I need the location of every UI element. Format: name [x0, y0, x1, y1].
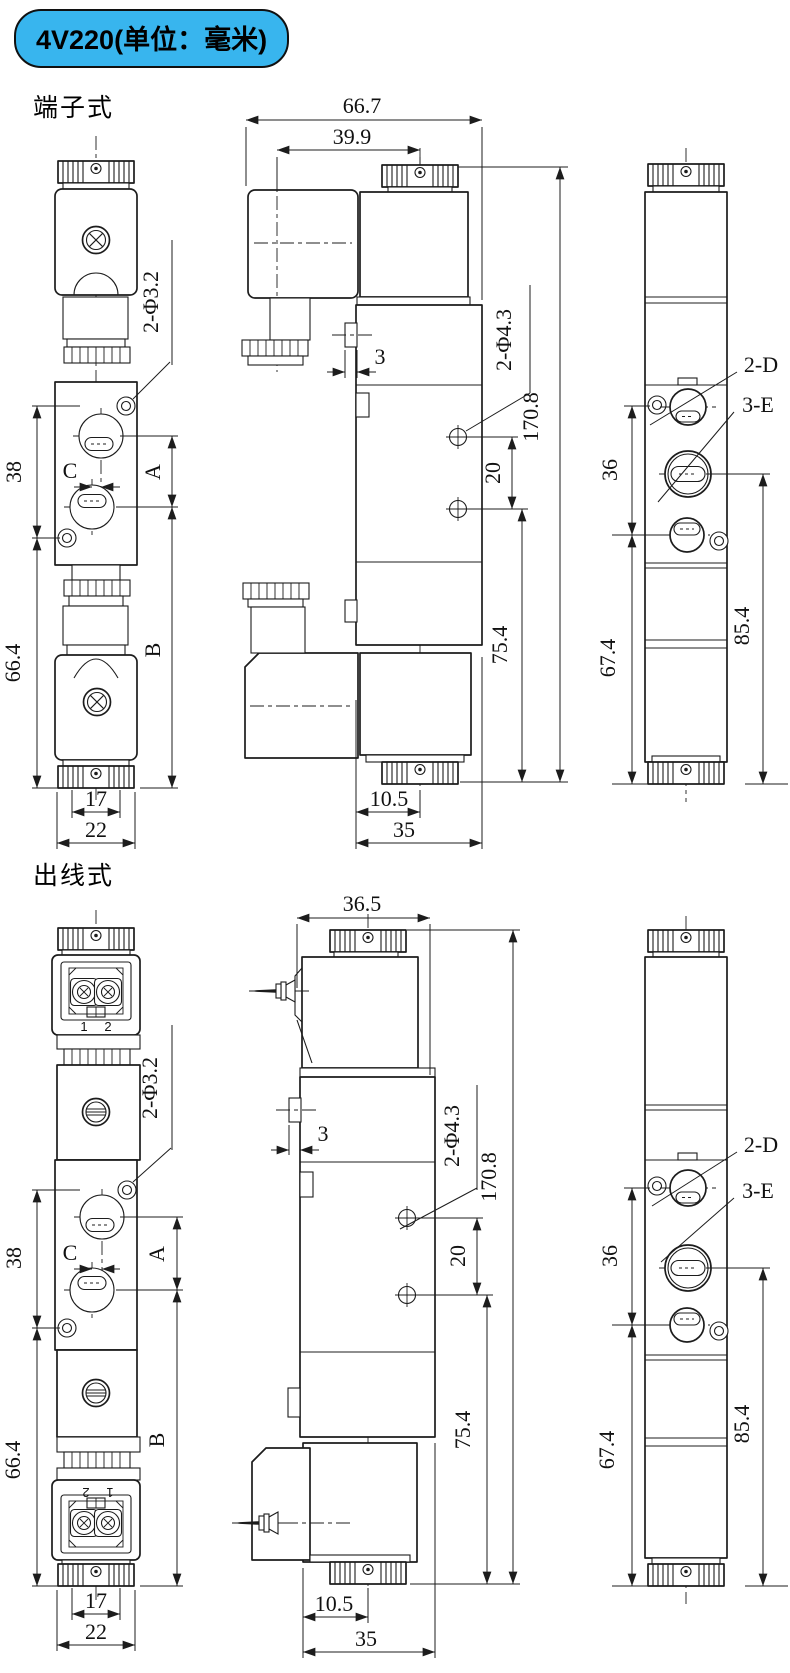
dim-text: 66.4	[0, 644, 25, 683]
hole-callout: 2-Φ4.3	[439, 1105, 464, 1167]
leadwire-type-side-view: 1 2 2 1	[0, 910, 183, 1651]
dim-text: A	[140, 464, 165, 480]
dim-text: 38	[1, 1247, 26, 1269]
hole-callout: 2-Φ4.3	[491, 309, 516, 371]
dim-text: 67.4	[594, 1431, 619, 1470]
dim-text: 85.4	[729, 1405, 754, 1444]
knurled-cap	[330, 1562, 406, 1584]
dim-text: 170.8	[518, 392, 543, 442]
pilot-hole	[710, 532, 728, 550]
knurled-cap	[648, 1564, 724, 1586]
dim-text: 22	[85, 1619, 107, 1644]
dim-text: 36	[597, 459, 622, 481]
dim-text: 10.5	[315, 1591, 354, 1616]
dim-text: B	[144, 1433, 169, 1448]
pilot-hole	[710, 1322, 728, 1340]
technical-drawing: 2-Φ3.2 38 66.4 C A	[0, 0, 790, 1673]
terminal-type-side-view: 2-Φ3.2 38 66.4 C A	[0, 136, 178, 849]
dim-text: 170.8	[476, 1152, 501, 1202]
port-a	[79, 414, 123, 458]
slotted-screw-icon	[83, 1099, 110, 1126]
dim-text: 75.4	[487, 626, 512, 665]
hole-callout: 2-Φ3.2	[138, 271, 163, 333]
port-label: 3-E	[742, 392, 774, 417]
dim-text: 67.4	[595, 639, 620, 678]
dim-text: A	[144, 1246, 169, 1262]
leadwire-type-end-view: 2-D 3-E 36 67.4 85.4	[594, 916, 788, 1604]
knurled-cap	[648, 930, 724, 952]
mounting-hole	[118, 1181, 136, 1199]
terminal-label: 1	[80, 1019, 87, 1034]
knurled-cap	[382, 165, 458, 187]
dim-17: 17	[72, 786, 120, 818]
dim-66-4: 66.4	[0, 538, 60, 788]
knurled-cap	[648, 762, 724, 784]
pilot-hole	[648, 396, 666, 414]
dim-text: 35	[393, 817, 415, 842]
leadwire-type-front-view: 36.5 3 2-Φ4.3 20 75.4	[232, 891, 520, 1658]
dim-text: 85.4	[729, 607, 754, 646]
port-label: 2-D	[744, 1132, 778, 1157]
mounting-hole	[58, 529, 76, 547]
terminal-type-end-view: 2-D 3-E 36 67.4 85.4	[595, 148, 788, 802]
din-connector	[52, 1480, 140, 1560]
terminal-label: 2	[82, 1485, 89, 1500]
port-label: 2-D	[744, 352, 778, 377]
dim-text: 66.4	[0, 1441, 25, 1480]
knurled-cap	[648, 164, 724, 186]
knurled-cap	[58, 766, 134, 788]
dim-text: 38	[1, 461, 26, 483]
dim-text: 66.7	[343, 93, 382, 118]
terminal-label: 1	[106, 1485, 113, 1500]
mounting-hole	[58, 1319, 76, 1337]
wire-lead	[249, 980, 309, 1002]
dim-text: 10.5	[370, 786, 409, 811]
dim-text: B	[140, 643, 165, 658]
knurled-cap	[330, 930, 406, 952]
dim-text: 20	[445, 1245, 470, 1267]
dim-text: 36.5	[343, 891, 382, 916]
dim-text: 3	[318, 1121, 329, 1146]
slotted-screw-icon	[83, 1380, 110, 1407]
dim-text: 17	[85, 786, 107, 811]
dim-75-4: 75.4	[487, 509, 522, 782]
drawing-canvas: 4V220(单位：毫米) 端子式 出线式	[0, 0, 790, 1673]
dim-text: 35	[355, 1626, 377, 1651]
mounting-hole	[117, 397, 135, 415]
dim-text: 20	[480, 462, 505, 484]
terminal-type-front-view: 66.7 39.9 3 2-Φ4.3 20	[242, 93, 568, 849]
dim-text: C	[63, 1240, 78, 1265]
dim-b: B	[140, 1290, 183, 1586]
dim-text: 3	[375, 344, 386, 369]
dim-text: 39.9	[333, 124, 372, 149]
hole-callout: 2-Φ3.2	[137, 1057, 162, 1119]
knurled-cap	[382, 762, 458, 784]
knurled-cap	[58, 1564, 134, 1586]
phillips-screw-icon	[84, 689, 111, 716]
knurled-cap	[58, 928, 134, 950]
dim-text: 36	[597, 1245, 622, 1267]
dim-17: 17	[72, 1588, 120, 1620]
port-label: 3-E	[742, 1178, 774, 1203]
terminal-label: 2	[104, 1019, 111, 1034]
knurled-cap	[58, 161, 134, 183]
pilot-hole	[648, 1177, 666, 1195]
dim-text: 22	[85, 817, 107, 842]
dim-66-4: 66.4	[0, 1328, 60, 1586]
dim-b: B	[140, 507, 178, 788]
dim-text: 75.4	[450, 1411, 475, 1450]
din-connector	[52, 955, 140, 1035]
dim-text: 17	[85, 1588, 107, 1613]
dim-75-4: 75.4	[450, 1295, 487, 1584]
phillips-screw-icon	[83, 227, 110, 254]
port-a	[80, 1195, 124, 1239]
dim-text: C	[63, 458, 78, 483]
dim-2-phi3-2: 2-Φ3.2	[133, 240, 172, 399]
